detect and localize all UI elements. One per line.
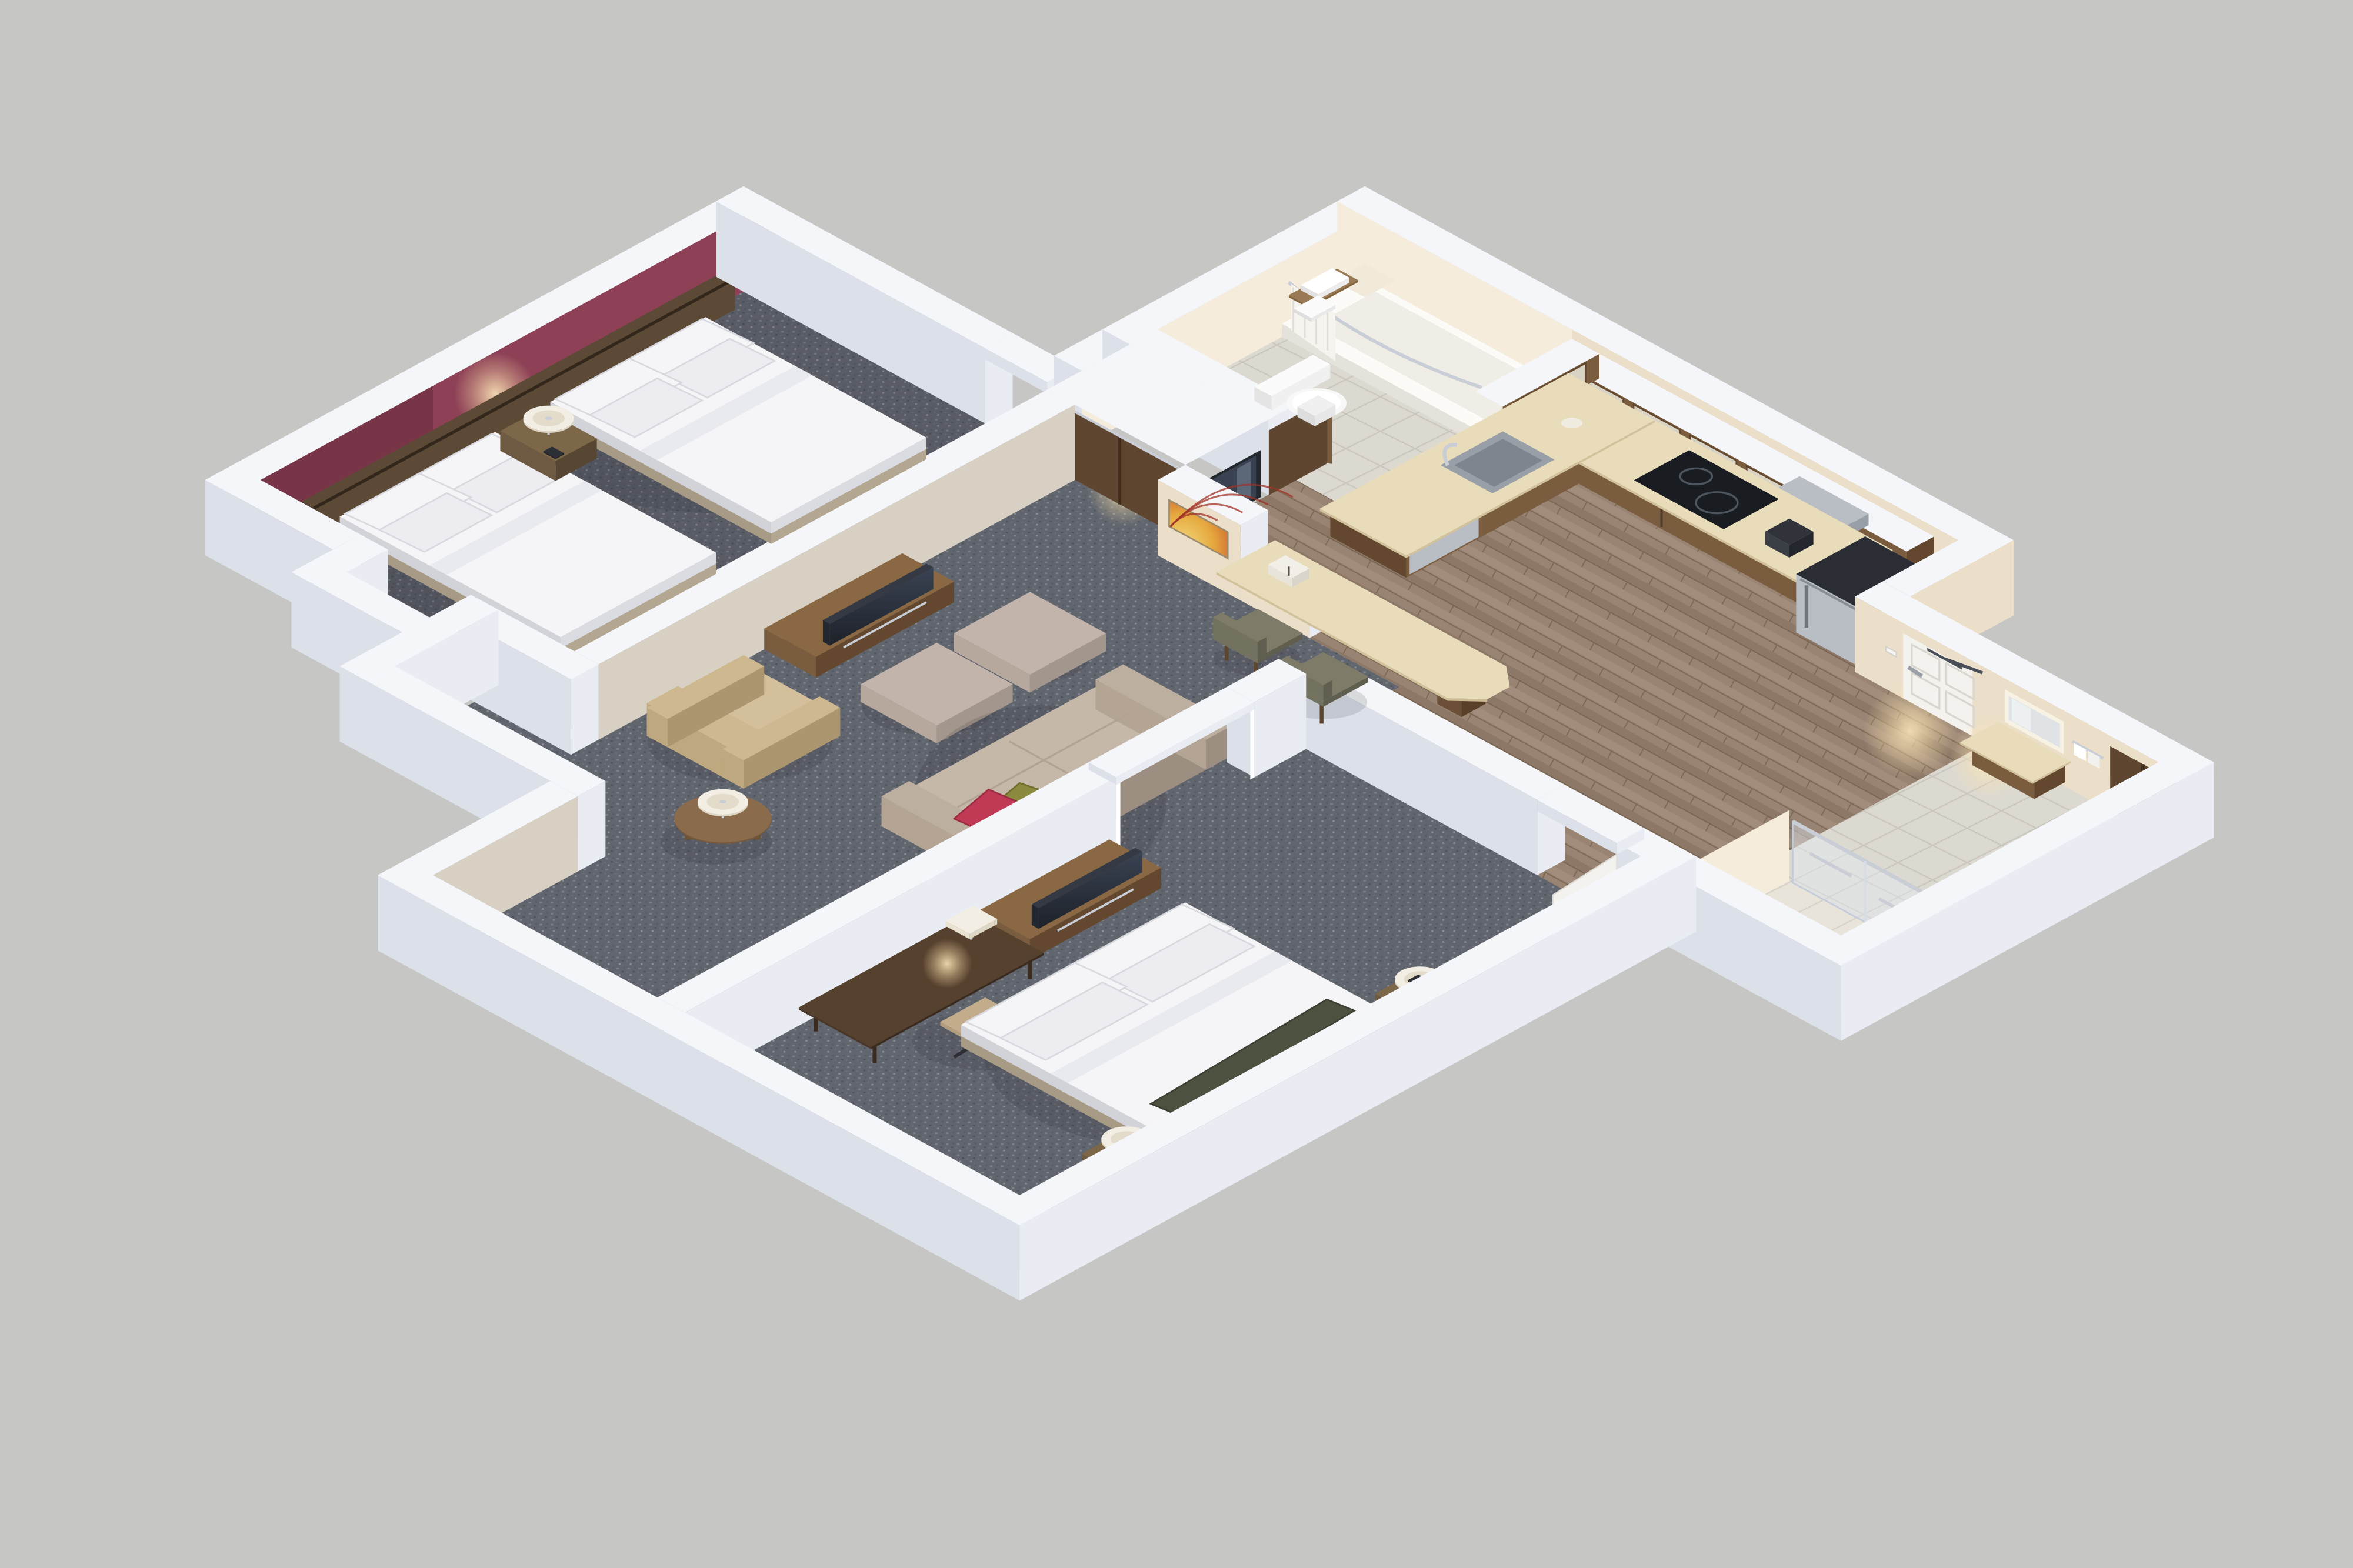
floor-plan-render: Overhead 3D cutaway rendering of a two-b…: [0, 0, 2353, 1568]
bedroom-2-east-wall-sw-face: [992, 1210, 1019, 1300]
partition-casing-2: [1116, 782, 1121, 852]
utensil-crock: [1561, 418, 1582, 428]
desk-lamp-pool: [922, 938, 972, 988]
bathroom-2-east-wall-sw-face: [1814, 950, 1841, 1041]
living-tv-sw-face: [823, 620, 830, 645]
living-south-wall-se-face: [578, 781, 605, 872]
suite-floor-plan-svg: [0, 0, 2353, 1568]
tv-niche-right-stub-sw-face: [340, 666, 368, 756]
bedroom-1-south-wall-inner-se-face: [571, 664, 599, 755]
bedroom-1-lamp-finial: [545, 416, 552, 420]
bedroom-2-tv-sw-face: [1032, 904, 1039, 929]
partition-casing-1: [1250, 709, 1254, 779]
side-table-chair-lamp-finial: [719, 800, 726, 803]
